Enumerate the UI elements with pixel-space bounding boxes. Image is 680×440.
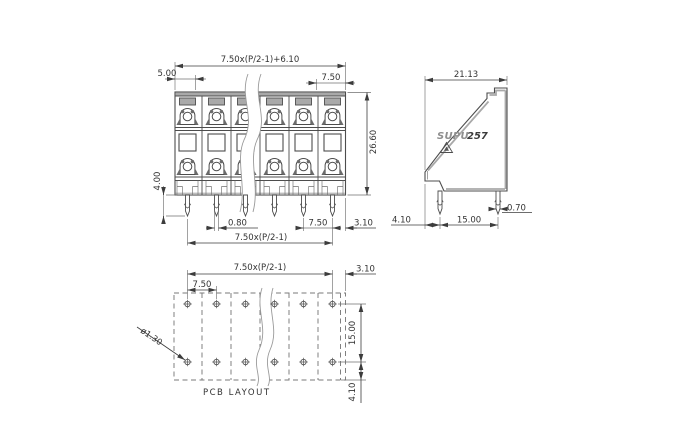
pcb-layout-caption: PCB LAYOUT — [203, 388, 271, 398]
wire-cavity — [208, 134, 225, 151]
brand-logo-text: SUPU — [437, 131, 469, 142]
pcb-edge-offset-dim: 3.10 — [356, 265, 375, 275]
side-pin-width-dim: 0.70 — [507, 204, 526, 214]
pcb-bottom-offset-dim: 4.10 — [348, 383, 358, 402]
wire-cavity — [295, 134, 312, 151]
wire-entry-slot — [209, 98, 225, 105]
pcb-layout-drawing: 7.50x(P/2-1) 3.10 7.50 15.00 4.10 ø1.30 … — [137, 263, 376, 403]
side-view-drawing: SUPU 257 21.13 4.10 15.00 0.70 — [391, 70, 532, 229]
wire-entry-slot — [296, 98, 312, 105]
wire-cavity — [179, 134, 196, 151]
mounting-hole — [183, 358, 192, 367]
solder-pin — [495, 191, 501, 214]
pcb-hole-span-dim: 7.50x(P/2-1) — [234, 263, 286, 273]
pcb-row-spacing-dim: 15.00 — [348, 321, 358, 345]
solder-pin — [242, 195, 248, 216]
side-pin-row-spacing-dim: 15.00 — [457, 216, 481, 226]
mounting-hole — [212, 358, 221, 367]
front-pin-span-dim: 7.50x(P/2-1) — [235, 233, 287, 243]
wire-cavity — [324, 134, 341, 151]
front-end-width-dim: 5.00 — [158, 69, 177, 79]
solder-pin — [437, 191, 443, 214]
mounting-hole — [299, 300, 308, 309]
front-pin-width-dim: 0.80 — [228, 219, 247, 229]
front-pin-pitch-dim: 7.50 — [309, 219, 328, 229]
mounting-hole — [212, 300, 221, 309]
side-depth-dim: 21.13 — [454, 70, 478, 80]
front-pin-edge-offset-dim: 3.10 — [354, 219, 373, 229]
mounting-hole — [183, 300, 192, 309]
mounting-hole — [241, 300, 250, 309]
pcb-hole-diameter-dim: ø1.30 — [138, 326, 164, 348]
solder-pin — [184, 195, 190, 216]
front-unit-pitch-dim: 7.50 — [322, 73, 341, 83]
mounting-hole — [241, 358, 250, 367]
technical-drawing: 7.50x(P/2-1)+6.10 5.00 7.50 26.60 4.00 — [0, 0, 680, 440]
front-total-width-dim: 7.50x(P/2-1)+6.10 — [221, 55, 300, 65]
mounting-hole — [270, 358, 279, 367]
front-top-shading — [176, 93, 345, 96]
mounting-hole — [299, 358, 308, 367]
front-pin-length-dim: 4.00 — [153, 172, 163, 191]
solder-pin — [271, 195, 277, 216]
wire-entry-slot — [325, 98, 341, 105]
pcb-layout-dimensions: 7.50x(P/2-1) 3.10 7.50 15.00 4.10 ø1.30 — [137, 263, 376, 403]
wire-cavity — [266, 134, 283, 151]
model-number-text: 257 — [467, 131, 488, 142]
solder-pin — [329, 195, 335, 216]
front-height-dim: 26.60 — [369, 130, 379, 154]
terminal-block-drawing-sheet: 7.50x(P/2-1)+6.10 5.00 7.50 26.60 4.00 — [0, 0, 680, 440]
wire-entry-slot — [267, 98, 283, 105]
mounting-hole — [328, 358, 337, 367]
wire-entry-slot — [180, 98, 196, 105]
side-pin-edge-offset-dim: 4.10 — [392, 216, 411, 226]
solder-pin — [300, 195, 306, 216]
front-view-drawing: 7.50x(P/2-1)+6.10 5.00 7.50 26.60 4.00 — [153, 55, 379, 246]
pcb-hole-pitch-dim: 7.50 — [193, 280, 212, 290]
mounting-hole — [328, 300, 337, 309]
